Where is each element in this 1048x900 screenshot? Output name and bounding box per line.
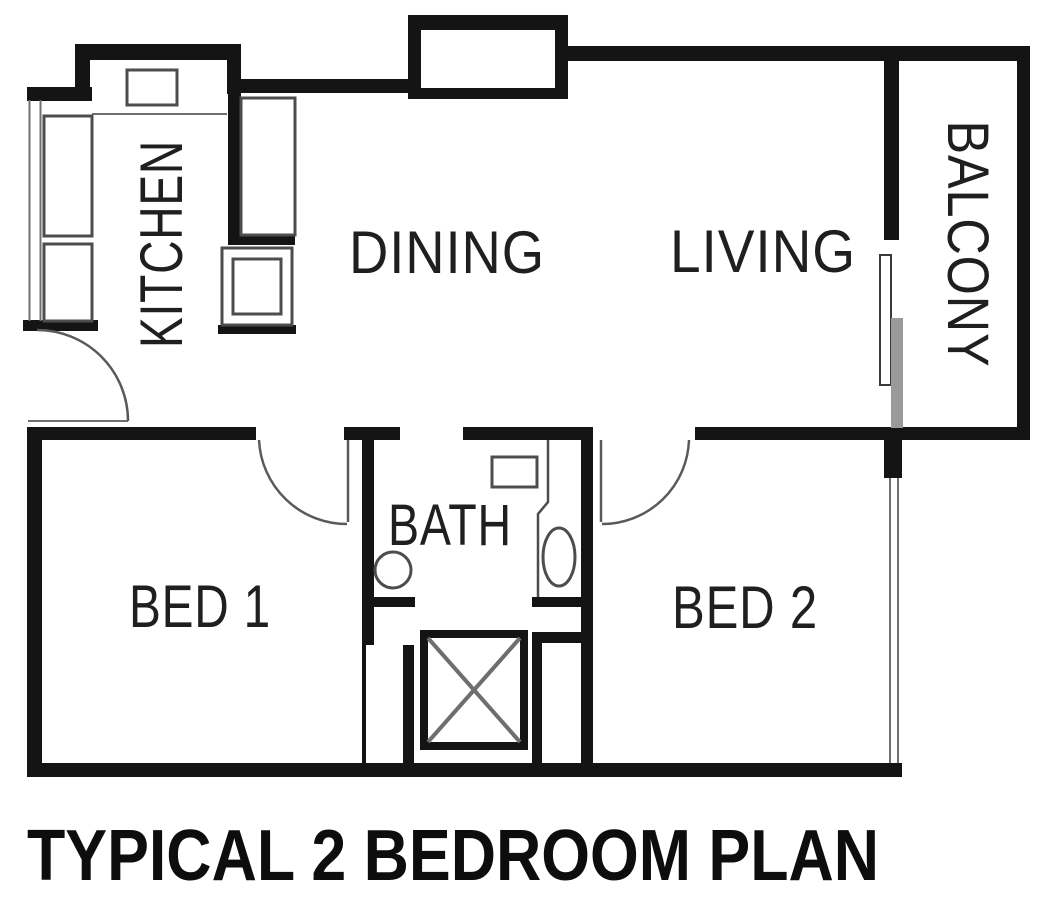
counter-right [241,98,295,235]
floor-plan-canvas: KITCHEN DINING LIVING BALCONY BED 1 BATH… [0,0,1048,900]
wall-thin-left-lower [362,645,366,763]
counter-left-upper [44,116,92,236]
balcony-label: BALCONY [935,121,1000,368]
balcony-sliding-door [880,255,903,428]
bed2-label: BED 2 [672,574,818,641]
wall-bed1-top [27,427,256,440]
wall-top-left [27,87,92,101]
wall-top-niche-inner [421,30,555,88]
wall-bath-top-right-seg [463,427,593,440]
floor-plan-drawing: KITCHEN DINING LIVING BALCONY BED 1 BATH… [0,0,1048,900]
wall-kitchen-bump-top [75,44,241,60]
wall-left-outer [27,427,42,777]
wall-duct-right [532,643,542,763]
bed2-door-arc [602,440,689,524]
wall-duct-left [403,645,414,763]
wall-living-top [566,46,1030,61]
living-label: LIVING [670,218,856,285]
slider-panel-inner [891,318,903,428]
slider-panel-outer [880,255,891,385]
wall-bath-bottom-stub-right [532,597,583,607]
bed1-door-arc [259,440,347,524]
wall-dining-top [228,79,409,93]
wall-bath-right [581,427,593,763]
entry-door-arc [37,330,128,421]
wall-bed2-top [695,427,1030,440]
plan-title: TYPICAL 2 BEDROOM PLAN [27,816,879,896]
wall-bath-bottom-stub-left [368,597,415,607]
bath-label: BATH [388,493,512,558]
toilet-bowl [543,528,575,586]
wall-balcony-right [1017,46,1030,437]
wall-living-balcony-divider [884,60,899,240]
stove-inner [233,259,281,314]
bed1-label: BED 1 [129,573,271,640]
fridge-box [127,70,177,105]
wall-bath-left [362,427,374,645]
wall-duct-bar-right [532,632,583,643]
wall-kitchen-right [228,93,241,237]
wall-bottom [27,763,902,777]
kitchen-label: KITCHEN [128,140,195,348]
shaft-box [420,630,528,750]
dining-label: DINING [349,219,545,286]
counter-left-lower [44,244,92,321]
wall-bed2-right-stub [884,440,902,478]
toilet-tank [492,457,537,487]
